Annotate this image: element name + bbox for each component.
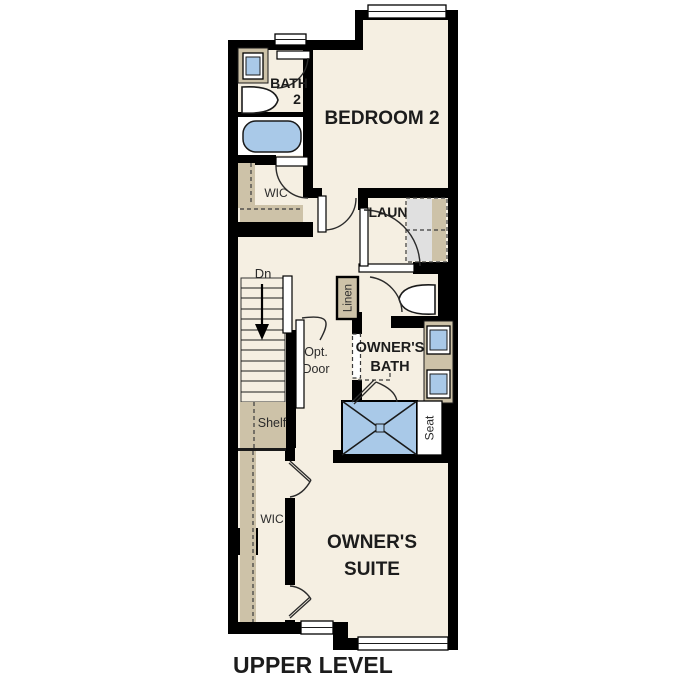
bedroom2-door-leaf [318,196,326,232]
label-opt-door-line2: Door [302,362,329,376]
wall-toilet-nook-right [438,262,450,318]
window-bedroom2-top [368,5,446,18]
label-wic-lower: WIC [260,512,284,526]
wall-stair-hall [286,330,296,448]
wall-wic-lower-right-c [285,620,295,634]
wic-lower-closet-strip [240,451,256,622]
wall-stub-below-opt-door [352,380,362,403]
label-owners-suite-line2: SUITE [344,559,400,580]
stair-handrail [283,276,292,333]
plan-title: UPPER LEVEL [233,652,393,678]
label-bath2-line2: 2 [293,91,301,107]
owners-sink2 [430,374,447,394]
wall-wic-lower-right-b [285,498,295,585]
wic-upper-closet-bottom [240,205,303,222]
label-opt-door-line1: Opt. [304,345,328,359]
label-seat: Seat [423,415,437,440]
window-bath2-top [275,34,306,45]
floor-plan: BATH 2 BEDROOM 2 WIC LAUN Dn Linen Opt. … [0,0,687,687]
wic-upper-door-header [276,157,308,166]
shelf-divider [238,448,286,451]
label-shelf: Shelf [258,416,287,430]
wall-wic-upper-bottom [228,222,313,237]
label-laundry: LAUN [369,204,408,220]
wall-bedroom-bottom-right [358,188,448,198]
label-owners-bath-line2: BATH [370,359,409,375]
floor-plan-canvas: BATH 2 BEDROOM 2 WIC LAUN Dn Linen Opt. … [0,0,687,687]
label-owners-bath-line1: OWNER'S [356,340,425,356]
wall-laundry-left [358,188,368,210]
label-linen: Linen [343,284,355,312]
shower-drain [376,424,384,432]
wall-wic-lower-right-a [285,448,295,461]
window-wic-bottom [301,621,333,634]
bath2-door-leaf [277,51,310,59]
label-bedroom2: BEDROOM 2 [324,108,439,129]
window-suite-bottom [358,637,448,650]
owners-sink1 [430,330,447,350]
wic-upper-closet-left [238,163,255,208]
label-bath2-line1: BATH [270,75,308,91]
label-owners-suite-line1: OWNER'S [327,532,417,553]
bath2-sink [246,57,260,75]
label-wic-upper: WIC [264,186,288,200]
laundry-door-leaf [360,208,368,266]
bathtub [243,121,301,152]
label-down: Dn [255,266,272,281]
